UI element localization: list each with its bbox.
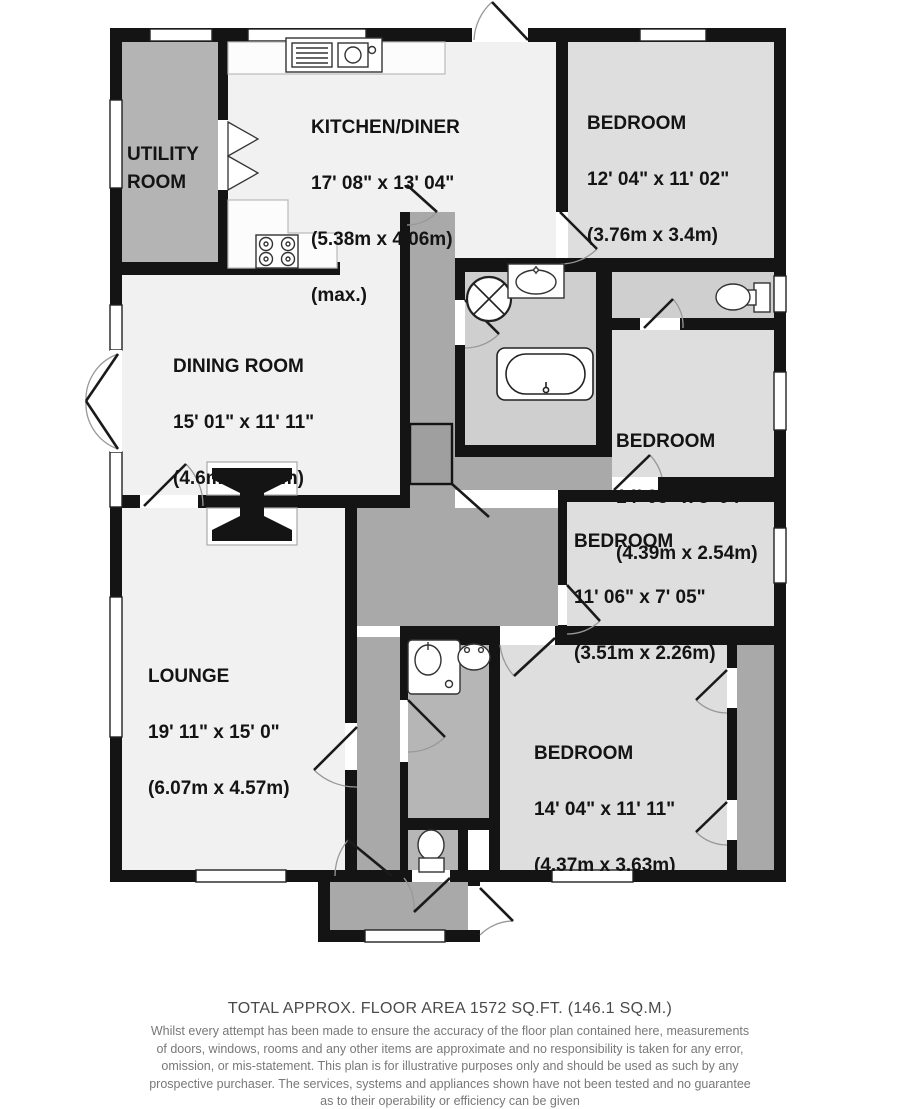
- room-size-metric: (3.76m x 3.4m): [587, 222, 729, 250]
- room-label-dining: DINING ROOM 15' 01" x 11' 11" (4.6m x 3.…: [173, 325, 314, 521]
- room-label-bedroom1: BEDROOM 12' 04" x 11' 02" (3.76m x 3.4m): [587, 82, 729, 278]
- room-size-imperial: 12' 04" x 11' 02": [587, 166, 729, 194]
- room-size-imperial: 15' 01" x 11' 11": [173, 409, 314, 437]
- room-label-kitchen: KITCHEN/DINER 17' 08" x 13' 04" (5.38m x…: [311, 86, 460, 338]
- room-name: BEDROOM: [534, 740, 676, 768]
- window-lounge-bottom: [196, 870, 286, 882]
- room-name: BEDROOM: [587, 110, 729, 138]
- window-bedroom3-right: [774, 528, 786, 583]
- room-size-imperial: 19' 11" x 15' 0": [148, 719, 290, 747]
- room-label-bedroom3: BEDROOM 11' 06" x 7' 05" (3.51m x 2.26m): [574, 500, 716, 696]
- room-size-note: (max.): [311, 282, 460, 310]
- room-label-bedroom4: BEDROOM 14' 04" x 11' 11" (4.37m x 3.63m…: [534, 712, 676, 908]
- window-utility-left: [110, 100, 122, 188]
- window-wc-right: [774, 276, 786, 312]
- room-size-imperial: 11' 06" x 7' 05": [574, 584, 716, 612]
- hob-icon: [256, 235, 298, 268]
- front-door-gap: [468, 886, 480, 930]
- shower-icon: [467, 277, 511, 321]
- window-dining-lower: [110, 452, 122, 507]
- room-size-metric: (3.51m x 2.26m): [574, 640, 716, 668]
- room-size-metric: (6.07m x 4.57m): [148, 775, 290, 803]
- cupboard: [410, 424, 452, 484]
- room-name: KITCHEN/DINER: [311, 114, 460, 142]
- ensuite-basin-icon: [458, 644, 490, 670]
- window-porch: [365, 930, 445, 942]
- room-size-metric: (4.37m x 3.63m): [534, 852, 676, 880]
- room-size-metric: (4.6m x 3.63m): [173, 465, 314, 493]
- footer: TOTAL APPROX. FLOOR AREA 1572 SQ.FT. (14…: [50, 1000, 850, 1109]
- ensuite-shower-icon: [408, 640, 460, 694]
- room-size-metric: (5.38m x 4.06m): [311, 226, 460, 254]
- disclaimer-line: as to their operability or efficiency ca…: [50, 1093, 850, 1109]
- window-dining-upper: [110, 305, 122, 350]
- disclaimer-line: prospective purchaser. The services, sys…: [50, 1076, 850, 1094]
- bathroom-basin-icon: [508, 264, 564, 298]
- disclaimer-line: omission, or mis-statement. This plan is…: [50, 1058, 850, 1076]
- front-door-leaf: [480, 888, 513, 921]
- total-floor-area: TOTAL APPROX. FLOOR AREA 1572 SQ.FT. (14…: [50, 1000, 850, 1018]
- room-name: DINING ROOM: [173, 353, 314, 381]
- toilet-icon-bottom: [418, 830, 444, 872]
- window-bedroom1-top: [640, 29, 706, 41]
- room-name: UTILITY ROOM: [127, 144, 199, 193]
- room-name: LOUNGE: [148, 663, 290, 691]
- front-door-arc: [480, 921, 513, 935]
- room-size-imperial: 17' 08" x 13' 04": [311, 170, 460, 198]
- window-lounge-left: [110, 597, 122, 737]
- bathtub-icon: [497, 348, 593, 400]
- room-name: BEDROOM: [616, 428, 758, 456]
- room-name: BEDROOM: [574, 528, 716, 556]
- floorplan-page: UTILITY ROOM KITCHEN/DINER 17' 08" x 13'…: [0, 0, 900, 1109]
- room-label-utility: UTILITY ROOM: [127, 113, 199, 197]
- disclaimer-line: Whilst every attempt has been made to en…: [50, 1023, 850, 1041]
- kitchen-sink-icon: [286, 38, 382, 72]
- room-label-lounge: LOUNGE 19' 11" x 15' 0" (6.07m x 4.57m): [148, 635, 290, 831]
- window-utility-top: [150, 29, 212, 41]
- window-bedroom2-right: [774, 372, 786, 430]
- disclaimer-line: of doors, windows, rooms and any other i…: [50, 1041, 850, 1059]
- room-size-imperial: 14' 04" x 11' 11": [534, 796, 676, 824]
- toilet-icon-top: [716, 283, 770, 312]
